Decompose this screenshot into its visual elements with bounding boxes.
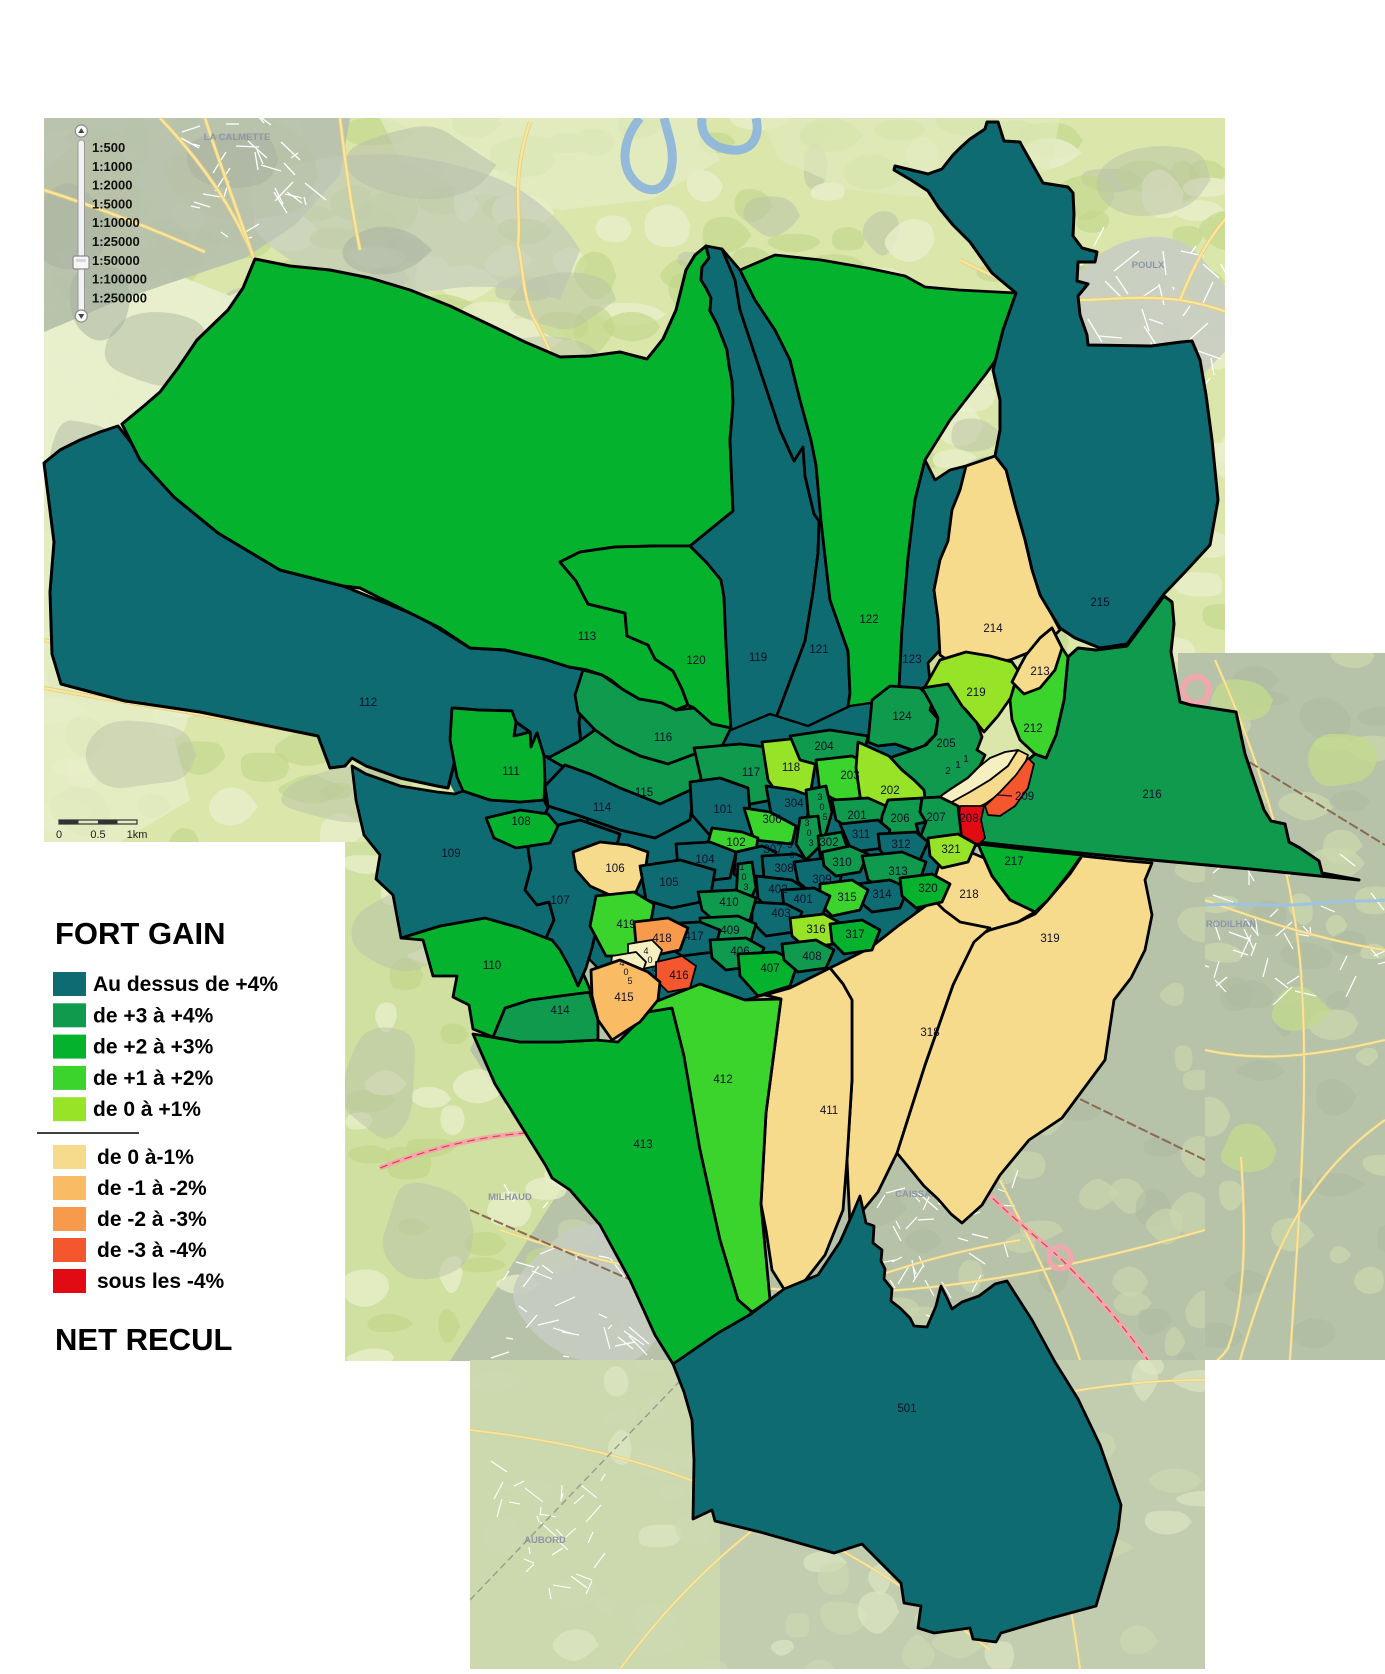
svg-text:1:5000: 1:5000 — [92, 196, 132, 211]
svg-text:108: 108 — [511, 816, 530, 828]
svg-text:1:100000: 1:100000 — [92, 272, 147, 287]
svg-text:418: 418 — [652, 933, 671, 945]
svg-text:203: 203 — [840, 770, 859, 782]
svg-text:410: 410 — [719, 897, 738, 909]
svg-text:LA CALMETTE: LA CALMETTE — [204, 132, 271, 143]
svg-text:417: 417 — [684, 931, 703, 943]
svg-text:320: 320 — [918, 883, 937, 895]
svg-text:5: 5 — [822, 812, 827, 822]
svg-text:0: 0 — [741, 872, 746, 882]
svg-text:218: 218 — [959, 889, 978, 901]
svg-text:1: 1 — [955, 760, 961, 771]
svg-text:116: 116 — [654, 732, 672, 744]
svg-text:RODILHAN: RODILHAN — [1206, 919, 1256, 930]
svg-text:402: 402 — [768, 884, 787, 896]
svg-text:2: 2 — [945, 766, 951, 777]
svg-text:302: 302 — [819, 837, 838, 849]
svg-text:119: 119 — [749, 652, 767, 664]
svg-text:de -1 à -2%: de -1 à -2% — [97, 1177, 207, 1200]
svg-text:3: 3 — [808, 838, 813, 848]
svg-text:316: 316 — [806, 924, 825, 936]
svg-text:205: 205 — [936, 738, 955, 750]
svg-text:219: 219 — [966, 687, 985, 699]
svg-text:123: 123 — [902, 654, 921, 666]
svg-text:312: 312 — [891, 839, 910, 851]
svg-text:3: 3 — [817, 792, 822, 802]
svg-text:POULX: POULX — [1132, 260, 1165, 271]
svg-text:115: 115 — [635, 787, 653, 799]
svg-text:1:10000: 1:10000 — [92, 215, 140, 230]
svg-text:1:50000: 1:50000 — [92, 253, 140, 268]
svg-text:sous les -4%: sous les -4% — [97, 1270, 225, 1293]
svg-text:de 0 à +1%: de 0 à +1% — [93, 1098, 201, 1121]
svg-text:213: 213 — [1030, 666, 1049, 678]
svg-text:206: 206 — [890, 813, 909, 825]
svg-text:122: 122 — [859, 614, 878, 626]
svg-text:401: 401 — [793, 894, 812, 906]
svg-text:408: 408 — [802, 951, 821, 963]
svg-text:306: 306 — [762, 814, 781, 826]
svg-text:209: 209 — [1015, 791, 1034, 803]
svg-text:1km: 1km — [127, 829, 148, 841]
svg-text:311: 311 — [852, 829, 870, 841]
svg-text:121: 121 — [809, 644, 828, 656]
svg-text:313: 313 — [888, 866, 907, 878]
svg-text:411: 411 — [820, 1105, 838, 1117]
svg-text:120: 120 — [686, 655, 705, 667]
svg-text:NET RECUL: NET RECUL — [55, 1322, 232, 1357]
svg-text:1:1000: 1:1000 — [92, 159, 132, 174]
svg-text:124: 124 — [892, 711, 912, 723]
svg-text:1: 1 — [739, 862, 744, 872]
svg-text:de -3 à -4%: de -3 à -4% — [97, 1239, 207, 1262]
svg-text:0: 0 — [56, 829, 62, 841]
svg-text:201: 201 — [847, 810, 866, 822]
svg-text:319: 319 — [1040, 933, 1059, 945]
svg-text:104: 104 — [695, 854, 715, 866]
svg-text:1: 1 — [963, 754, 969, 765]
svg-text:0: 0 — [819, 802, 824, 812]
svg-text:0: 0 — [806, 828, 811, 838]
svg-text:415: 415 — [614, 992, 633, 1004]
svg-text:310: 310 — [832, 857, 851, 869]
svg-text:4: 4 — [651, 964, 656, 974]
svg-text:114: 114 — [593, 802, 612, 814]
svg-text:309: 309 — [812, 874, 831, 886]
svg-text:1: 1 — [791, 860, 796, 870]
svg-text:AUBORD: AUBORD — [524, 1535, 566, 1546]
svg-text:214: 214 — [983, 623, 1003, 635]
svg-text:413: 413 — [633, 1139, 652, 1151]
svg-text:207: 207 — [926, 812, 945, 824]
svg-text:107: 107 — [550, 895, 569, 907]
svg-text:217: 217 — [1004, 856, 1023, 868]
svg-text:202: 202 — [880, 785, 899, 797]
svg-text:314: 314 — [872, 889, 892, 901]
svg-text:3: 3 — [804, 818, 809, 828]
svg-text:414: 414 — [550, 1005, 570, 1017]
svg-text:403: 403 — [771, 908, 790, 920]
svg-text:419: 419 — [616, 919, 635, 931]
svg-text:317: 317 — [845, 929, 864, 941]
svg-text:FORT GAIN: FORT GAIN — [55, 916, 226, 951]
svg-text:112: 112 — [359, 697, 377, 709]
svg-text:de +3 à +4%: de +3 à +4% — [93, 1004, 214, 1027]
svg-text:Au dessus de +4%: Au dessus de +4% — [93, 973, 278, 996]
svg-text:1:2000: 1:2000 — [92, 178, 132, 193]
svg-text:216: 216 — [1142, 789, 1161, 801]
svg-text:117: 117 — [742, 767, 760, 779]
svg-text:215: 215 — [1090, 597, 1109, 609]
svg-text:307: 307 — [763, 844, 782, 856]
svg-text:416: 416 — [669, 970, 688, 982]
svg-text:3: 3 — [743, 882, 748, 892]
svg-text:MILHAUD: MILHAUD — [488, 1192, 532, 1203]
svg-text:212: 212 — [1023, 723, 1042, 735]
svg-text:407: 407 — [760, 963, 779, 975]
svg-text:0: 0 — [789, 850, 794, 860]
svg-text:101: 101 — [713, 804, 732, 816]
svg-text:de +1 à +2%: de +1 à +2% — [93, 1067, 214, 1090]
svg-text:110: 110 — [483, 960, 501, 972]
svg-text:118: 118 — [782, 762, 800, 774]
svg-text:111: 111 — [502, 766, 519, 778]
svg-text:105: 105 — [659, 877, 678, 889]
svg-text:102: 102 — [726, 837, 745, 849]
svg-text:412: 412 — [713, 1074, 732, 1086]
svg-text:204: 204 — [814, 741, 834, 753]
svg-text:5: 5 — [627, 976, 632, 986]
svg-text:409: 409 — [720, 925, 739, 937]
svg-text:1:250000: 1:250000 — [92, 290, 147, 305]
svg-text:321: 321 — [941, 844, 960, 856]
svg-text:de -2 à -3%: de -2 à -3% — [97, 1208, 207, 1231]
svg-text:106: 106 — [605, 863, 624, 875]
svg-text:de +2 à +3%: de +2 à +3% — [93, 1036, 214, 1059]
svg-text:315: 315 — [837, 892, 856, 904]
svg-text:1:25000: 1:25000 — [92, 234, 140, 249]
svg-text:113: 113 — [578, 631, 596, 643]
svg-text:318: 318 — [920, 1027, 939, 1039]
svg-text:208: 208 — [959, 813, 978, 825]
svg-text:304: 304 — [784, 798, 804, 810]
svg-text:0.5: 0.5 — [90, 829, 105, 841]
svg-text:1:500: 1:500 — [92, 140, 125, 155]
svg-text:109: 109 — [441, 848, 460, 860]
svg-text:de 0 à-1%: de 0 à-1% — [97, 1146, 194, 1169]
svg-text:406: 406 — [730, 946, 749, 958]
svg-text:3: 3 — [787, 840, 792, 850]
svg-text:501: 501 — [897, 1403, 916, 1415]
